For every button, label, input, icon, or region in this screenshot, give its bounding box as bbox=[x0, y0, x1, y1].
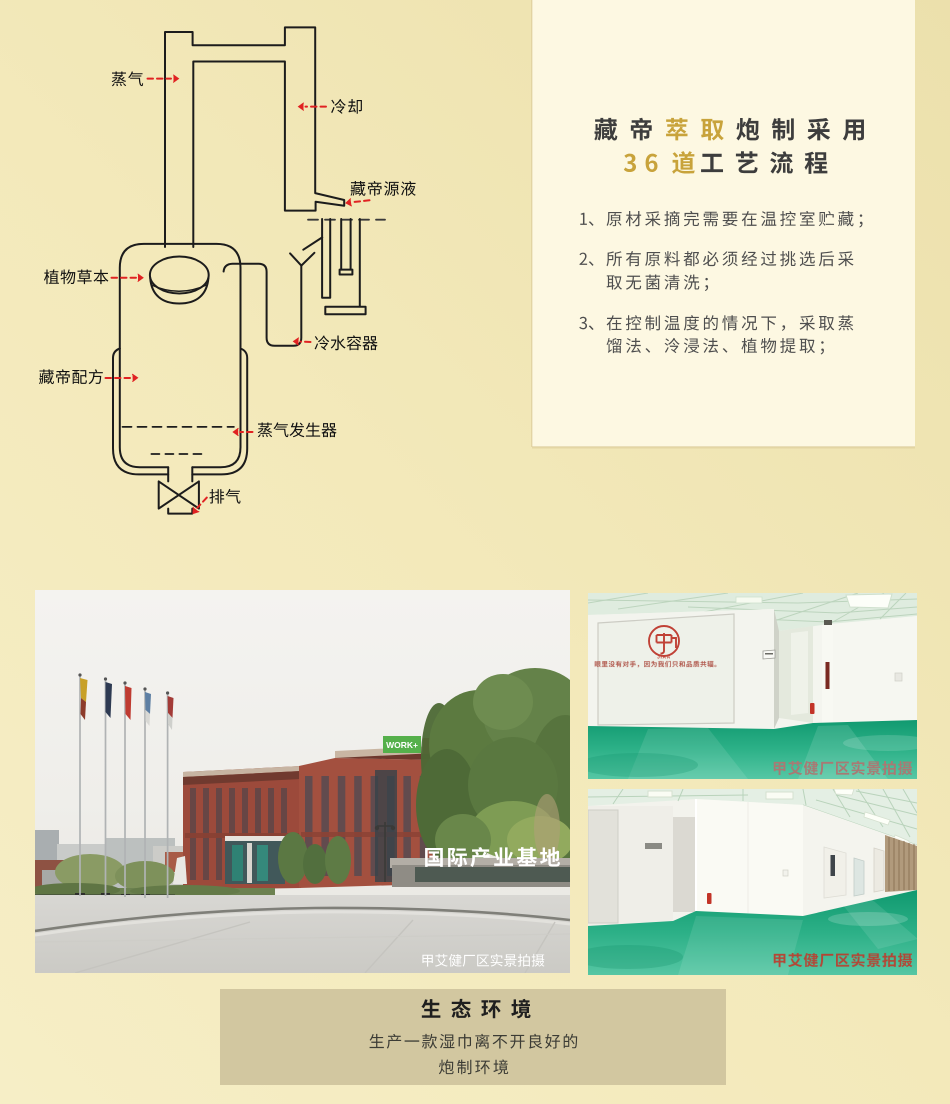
svg-text:JIAA: JIAA bbox=[657, 655, 671, 661]
svg-text:WORK+: WORK+ bbox=[386, 740, 418, 750]
